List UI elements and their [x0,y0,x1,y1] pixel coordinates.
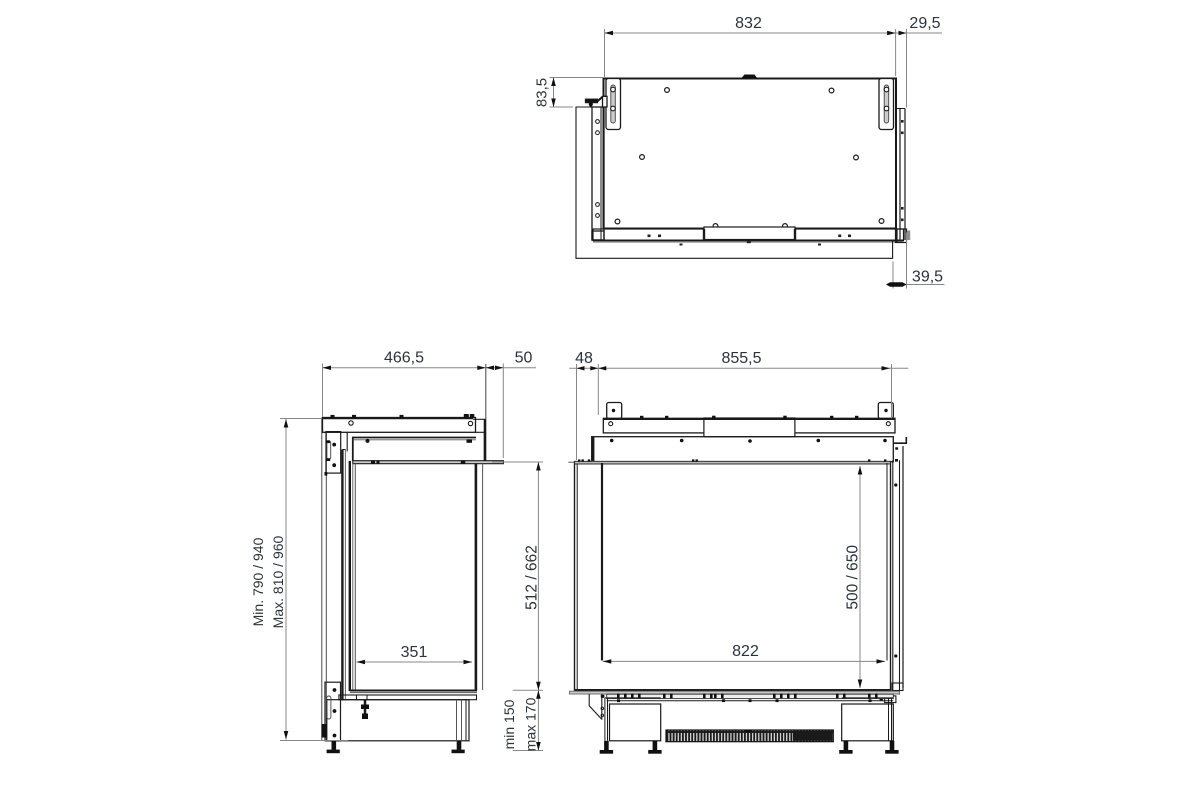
svg-text:min 150: min 150 [501,699,517,749]
svg-text:512 / 662: 512 / 662 [524,545,541,610]
svg-text:832: 832 [735,15,762,32]
svg-text:29,5: 29,5 [909,15,940,32]
svg-text:83,5: 83,5 [534,78,551,107]
svg-text:855,5: 855,5 [721,350,761,367]
svg-text:Max. 810 / 960: Max. 810 / 960 [270,535,286,628]
svg-text:466,5: 466,5 [384,350,424,367]
svg-text:max 170: max 170 [523,697,539,751]
svg-text:500 / 650: 500 / 650 [845,545,862,610]
svg-text:822: 822 [732,643,759,660]
svg-text:50: 50 [515,350,533,367]
svg-text:351: 351 [401,644,428,661]
svg-text:39,5: 39,5 [912,269,943,286]
svg-text:Min. 790 / 940: Min. 790 / 940 [250,537,266,626]
svg-text:48: 48 [575,350,593,367]
